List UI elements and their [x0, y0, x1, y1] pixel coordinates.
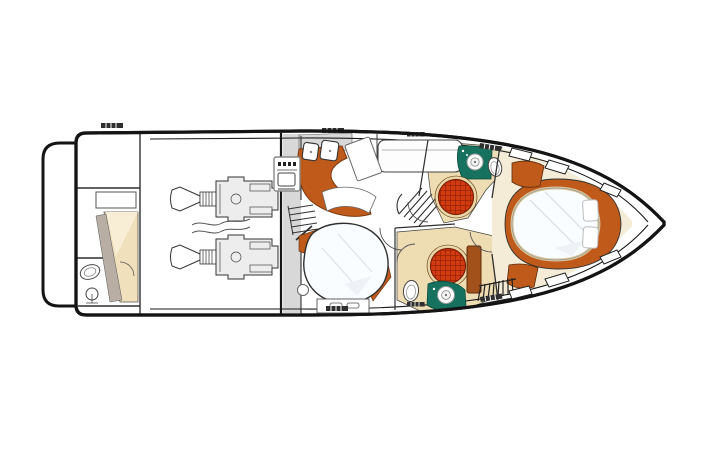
cleat-marker	[101, 123, 123, 128]
forward-shower-grate	[431, 249, 466, 284]
mid-head-sink-drain	[474, 161, 476, 163]
cleat-marker	[326, 306, 348, 311]
forward-head-tap	[433, 288, 435, 290]
yacht-deck-plan	[0, 0, 712, 450]
forward-head-cabinet	[467, 246, 481, 293]
mid-head-tap2	[466, 154, 468, 156]
island-bed	[512, 188, 599, 260]
cleat-marker	[407, 302, 425, 307]
guest-bed	[304, 223, 388, 303]
master-pillow-2	[582, 227, 598, 249]
master-seat-bottom	[507, 264, 538, 288]
mid-head-tap	[462, 150, 464, 152]
guest-bench-slot-2	[347, 303, 359, 308]
master-seat-top	[512, 161, 544, 187]
guest-stool	[298, 285, 309, 296]
side-settee	[378, 140, 462, 172]
stove-icon	[274, 157, 300, 191]
mid-shower-grate	[439, 180, 474, 215]
page	[0, 0, 712, 450]
crew-shelf	[96, 192, 136, 208]
master-pillow-1	[582, 200, 598, 222]
forward-head-sink-drain	[445, 294, 447, 296]
